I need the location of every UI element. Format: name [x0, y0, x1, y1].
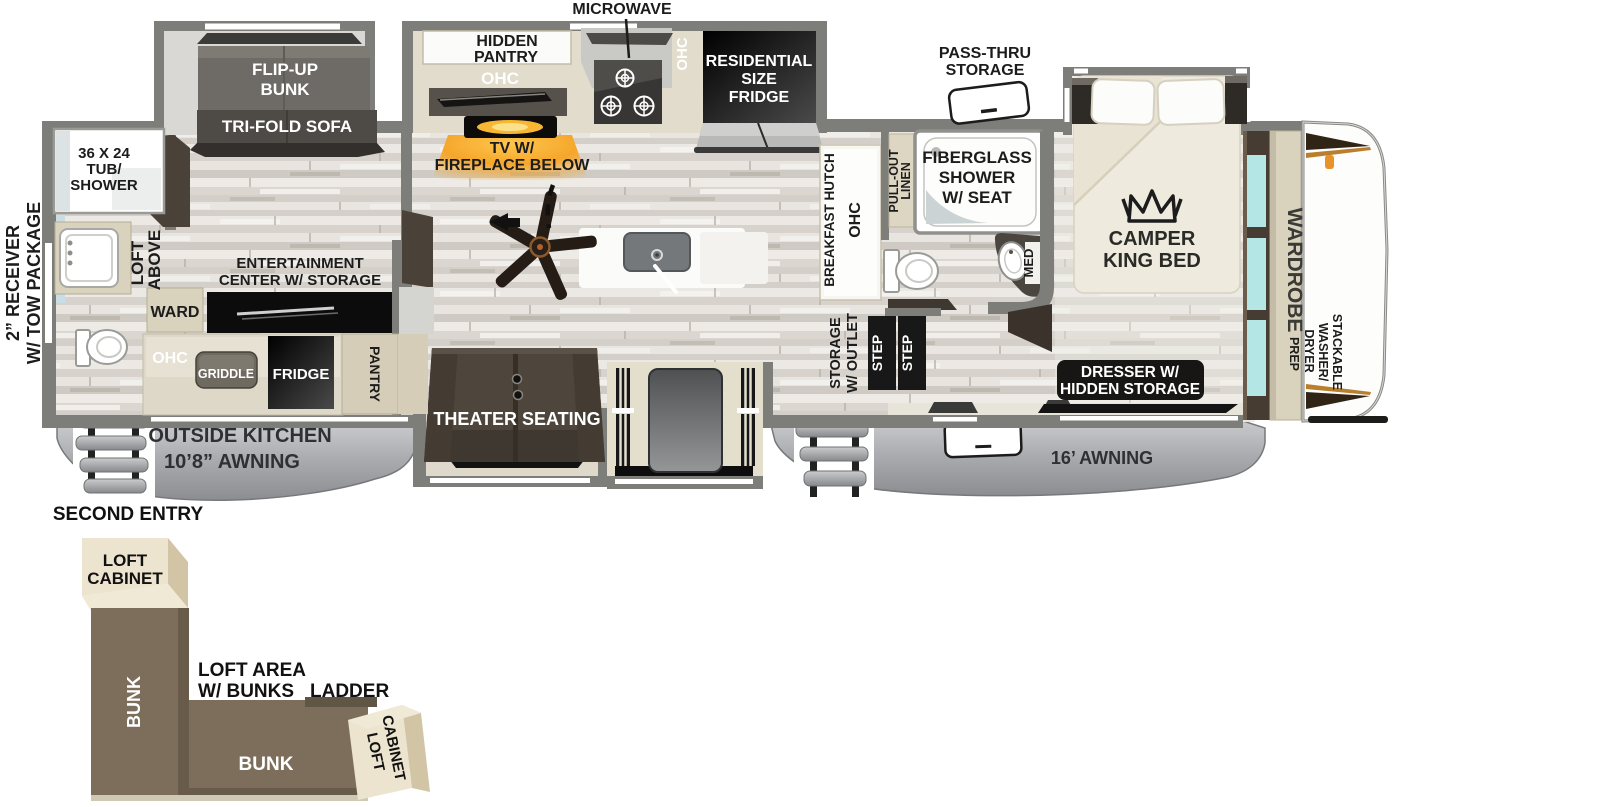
svg-text:BUNK: BUNK [260, 80, 310, 99]
svg-text:THEATER SEATING: THEATER SEATING [433, 409, 600, 429]
svg-text:SHOWER: SHOWER [939, 168, 1016, 187]
svg-text:CABINET: CABINET [87, 569, 163, 588]
svg-text:TV W/: TV W/ [490, 140, 535, 157]
svg-text:MED: MED [1021, 249, 1036, 278]
svg-text:LINEN: LINEN [899, 162, 913, 200]
svg-text:KING BED: KING BED [1103, 250, 1201, 272]
svg-text:OHC: OHC [152, 350, 188, 367]
svg-text:STACKABLE: STACKABLE [1330, 314, 1344, 390]
svg-text:STEP: STEP [869, 335, 885, 372]
svg-text:TUB/: TUB/ [87, 161, 123, 178]
svg-text:ABOVE: ABOVE [145, 230, 164, 290]
svg-text:LOFT: LOFT [103, 551, 148, 570]
svg-text:DRESSER W/: DRESSER W/ [1081, 364, 1180, 381]
svg-text:ENTERTAINMENT: ENTERTAINMENT [236, 255, 363, 272]
svg-text:10’8” AWNING: 10’8” AWNING [164, 451, 300, 473]
svg-text:W/ OUTLET: W/ OUTLET [845, 313, 861, 393]
svg-text:PANTRY: PANTRY [474, 49, 538, 66]
svg-text:STEP: STEP [899, 335, 915, 372]
svg-text:16’ AWNING: 16’ AWNING [1051, 448, 1153, 468]
svg-text:SIZE: SIZE [741, 71, 777, 88]
svg-text:36 X 24: 36 X 24 [78, 145, 130, 162]
svg-text:SECOND ENTRY: SECOND ENTRY [53, 504, 204, 525]
svg-text:WARD: WARD [151, 304, 200, 321]
svg-text:HIDDEN STORAGE: HIDDEN STORAGE [1060, 381, 1200, 398]
svg-text:STORAGE: STORAGE [828, 317, 844, 389]
svg-text:SHOWER: SHOWER [70, 177, 138, 194]
svg-text:OHC: OHC [674, 37, 691, 71]
svg-text:FLIP-UP: FLIP-UP [252, 60, 318, 79]
svg-text:OHC: OHC [847, 202, 864, 238]
svg-text:WASHER/: WASHER/ [1316, 323, 1330, 382]
svg-text:FRIDGE: FRIDGE [273, 366, 330, 383]
svg-text:STORAGE: STORAGE [946, 62, 1025, 79]
svg-text:CAMPER: CAMPER [1109, 228, 1196, 250]
svg-text:FIBERGLASS: FIBERGLASS [922, 148, 1032, 167]
svg-text:PANTRY: PANTRY [367, 346, 383, 403]
svg-text:TRI-FOLD SOFA: TRI-FOLD SOFA [222, 117, 352, 136]
svg-text:WARDROBE: WARDROBE [1283, 208, 1306, 333]
svg-text:W/ BUNKS: W/ BUNKS [198, 681, 294, 702]
svg-text:DRYER: DRYER [1302, 329, 1316, 372]
svg-text:RESIDENTIAL: RESIDENTIAL [706, 53, 813, 70]
svg-text:FIREPLACE BELOW: FIREPLACE BELOW [435, 157, 591, 174]
svg-text:2” RECEIVER: 2” RECEIVER [3, 225, 23, 341]
svg-text:BUNK: BUNK [239, 754, 294, 775]
svg-text:OHC: OHC [481, 69, 519, 88]
svg-text:LOFT AREA: LOFT AREA [198, 660, 306, 681]
svg-text:CENTER W/ STORAGE: CENTER W/ STORAGE [219, 272, 381, 289]
svg-text:FRIDGE: FRIDGE [729, 89, 790, 106]
svg-text:PREP: PREP [1287, 337, 1301, 371]
svg-text:HIDDEN: HIDDEN [476, 33, 537, 50]
svg-text:OUTSIDE KITCHEN: OUTSIDE KITCHEN [148, 425, 331, 447]
svg-text:W/ TOW PACKAGE: W/ TOW PACKAGE [24, 202, 44, 364]
svg-text:PASS-THRU: PASS-THRU [939, 45, 1031, 62]
svg-text:GRIDDLE: GRIDDLE [198, 367, 254, 381]
svg-text:MICROWAVE: MICROWAVE [572, 1, 672, 18]
svg-text:W/ SEAT: W/ SEAT [942, 188, 1012, 207]
svg-text:BUNK: BUNK [124, 676, 144, 728]
svg-text:BREAKFAST HUTCH: BREAKFAST HUTCH [822, 153, 837, 287]
